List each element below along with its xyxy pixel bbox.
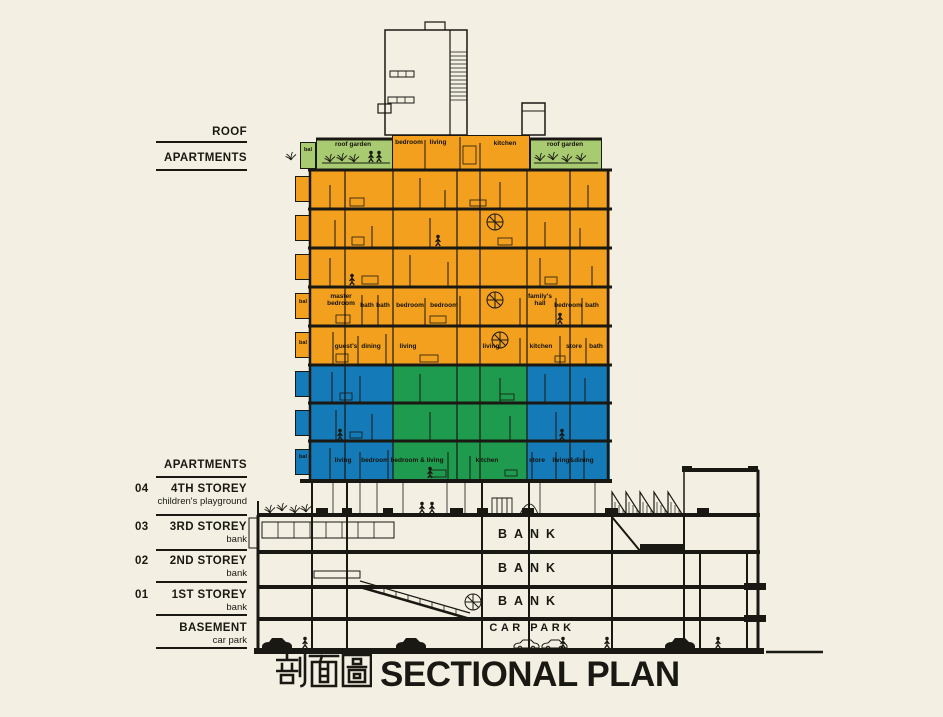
roof-tower xyxy=(378,22,545,135)
drawing-title: 剖面圖 SECTIONAL PLAN xyxy=(276,650,680,692)
room-label: living xyxy=(335,458,352,465)
room-label: kitchen xyxy=(494,141,517,148)
sectional-plan-drawing: ROOF APARTMENTS APARTMENTS 044TH STOREY … xyxy=(0,0,943,717)
tower-interior-detail xyxy=(330,178,592,480)
room-label: kitchen xyxy=(530,344,553,351)
room-label: living xyxy=(430,140,447,147)
room-label: store xyxy=(566,344,582,351)
room-label: bedroom & living xyxy=(390,458,443,465)
bank-label: BANK xyxy=(498,527,562,541)
room-label: bal xyxy=(299,300,307,306)
bank-label: BANK xyxy=(498,594,562,608)
room-label: bal xyxy=(304,148,312,154)
room-label: living xyxy=(483,344,500,351)
room-label: roof garden xyxy=(335,142,371,149)
room-label: family's hall xyxy=(522,294,558,308)
room-label: living&dining xyxy=(552,458,593,465)
sawtooth-roof xyxy=(612,492,682,514)
room-label: bath xyxy=(589,344,603,351)
room-label: kitchen xyxy=(476,458,499,465)
tower-structure xyxy=(300,170,612,481)
playground-level-detail xyxy=(265,483,596,514)
title-english: SECTIONAL PLAN xyxy=(380,657,680,692)
title-chinese-glyphs xyxy=(276,650,372,692)
room-label: bedroom xyxy=(430,303,458,310)
room-label: bal xyxy=(299,341,307,347)
room-label: bal xyxy=(299,455,307,461)
room-label: store xyxy=(529,458,545,465)
room-label: bath xyxy=(585,303,599,310)
right-penthouse-box xyxy=(684,470,758,515)
room-label: roof garden xyxy=(547,142,583,149)
room-label: bath xyxy=(360,303,374,310)
room-label: bedroom xyxy=(395,140,423,147)
room-label: bath xyxy=(376,303,390,310)
car-park-label: CAR PARK xyxy=(489,622,574,634)
room-label: master bedroom xyxy=(323,294,359,308)
room-label: bedroom xyxy=(554,303,582,310)
room-label: bedroom xyxy=(396,303,424,310)
room-label: bedroom xyxy=(361,458,389,465)
podium-interior-detail xyxy=(262,522,481,619)
room-label: living xyxy=(400,344,417,351)
room-label: guest's xyxy=(335,344,358,351)
section-linework xyxy=(0,0,943,717)
bank-label: BANK xyxy=(498,561,562,575)
room-label: dining xyxy=(361,344,381,351)
